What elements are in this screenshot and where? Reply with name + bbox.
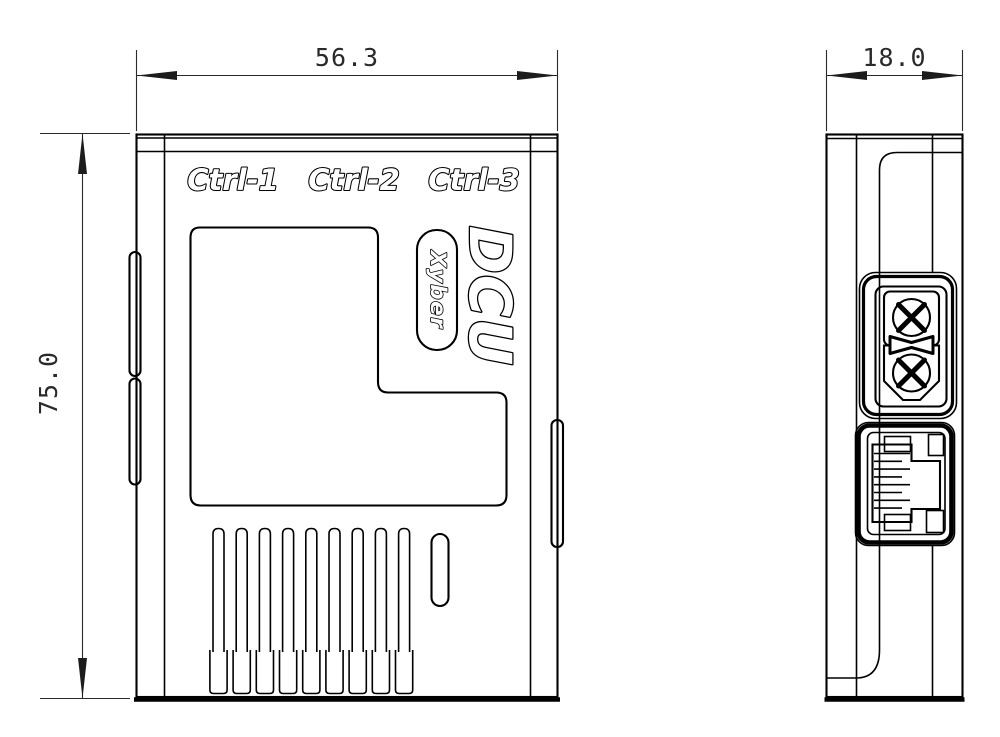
power-connector — [860, 273, 957, 419]
arrow-left — [827, 71, 868, 80]
arrow-right — [922, 71, 963, 80]
status-led-slot — [432, 534, 449, 606]
rj45-connector — [856, 423, 955, 546]
arrow-top — [78, 134, 87, 175]
arrow-bottom — [78, 658, 87, 699]
vent-slots-lower — [210, 650, 413, 694]
rj45-tab-bottom-right — [927, 511, 944, 533]
side-depth-dimension: 18.0 — [862, 43, 926, 72]
technical-drawing-page: 56.3 75.0 18.0 Ctrl-1 Ctrl-2 Ctrl-3 DCU … — [0, 0, 1000, 737]
connector-bowtie-key — [890, 337, 933, 354]
silkscreen-labels: Ctrl-1 Ctrl-2 Ctrl-3 DCU Xyber — [187, 163, 524, 366]
brand-label: Xyber — [425, 249, 450, 330]
port-label-ctrl1: Ctrl-1 — [187, 163, 279, 197]
dimension-width: 56.3 — [137, 43, 558, 131]
left-rail-upper — [130, 252, 141, 376]
left-rail-lower — [130, 379, 141, 485]
front-width-dimension: 56.3 — [315, 43, 379, 72]
arrow-left — [137, 71, 178, 80]
front-height-dimension: 75.0 — [34, 351, 63, 415]
side-view — [825, 135, 965, 700]
port-label-ctrl3: Ctrl-3 — [428, 163, 520, 197]
vent-slots-upper — [213, 529, 410, 653]
arrow-right — [517, 71, 558, 80]
front-view — [130, 135, 564, 700]
rj45-tab-top-right — [929, 435, 944, 456]
product-name-label: DCU — [456, 226, 524, 367]
front-outline — [137, 135, 558, 698]
port-label-ctrl2: Ctrl-2 — [308, 163, 400, 197]
dimension-height: 75.0 — [34, 134, 130, 699]
dimension-depth: 18.0 — [827, 43, 963, 131]
drawing-linework: 56.3 75.0 18.0 Ctrl-1 Ctrl-2 Ctrl-3 DCU … — [0, 0, 1000, 737]
